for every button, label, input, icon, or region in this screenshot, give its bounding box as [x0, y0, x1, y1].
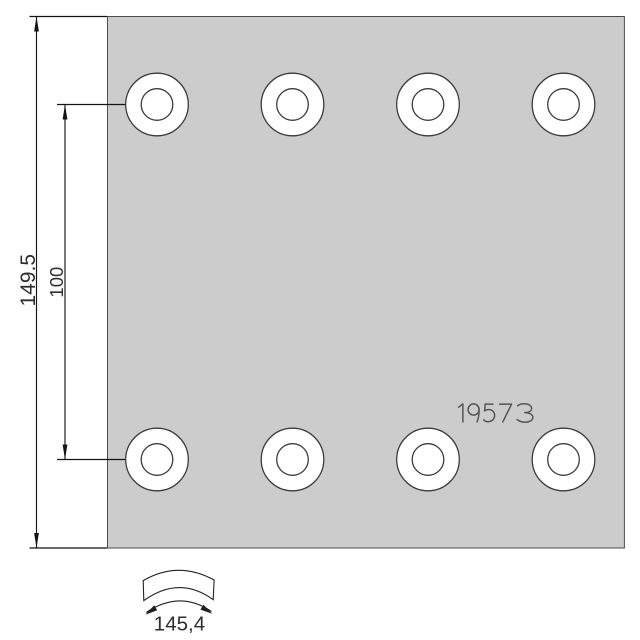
- svg-text:145,4: 145,4: [154, 612, 205, 635]
- svg-text:100: 100: [46, 267, 67, 298]
- svg-text:149.5: 149.5: [17, 254, 40, 307]
